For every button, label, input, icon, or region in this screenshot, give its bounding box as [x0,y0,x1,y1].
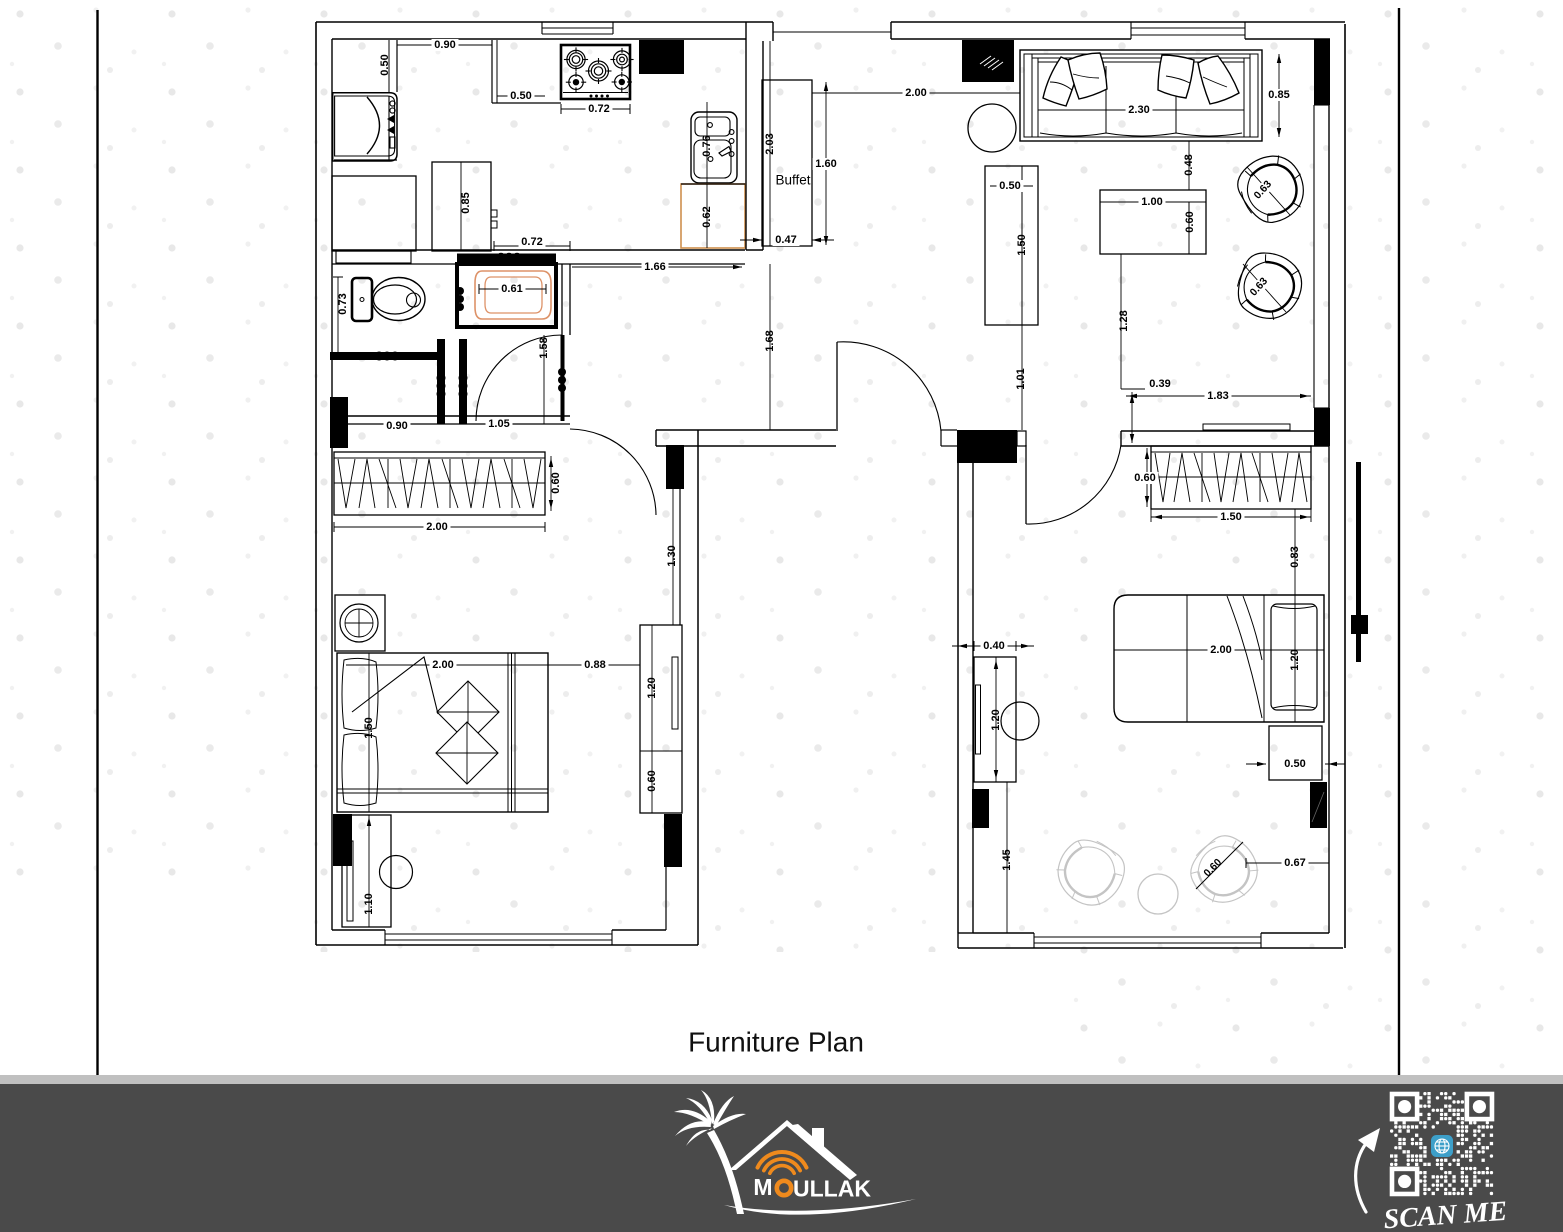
svg-text:0.72: 0.72 [588,103,609,115]
svg-text:1.83: 1.83 [1207,390,1228,402]
svg-text:0.76: 0.76 [701,135,713,156]
svg-text:ULLAK: ULLAK [793,1176,871,1202]
svg-text:1.50: 1.50 [1220,511,1241,523]
svg-text:0.72: 0.72 [521,236,542,248]
svg-text:0.90: 0.90 [386,420,407,432]
svg-text:M: M [753,1174,772,1200]
svg-text:0.60: 0.60 [646,770,658,791]
svg-text:0.61: 0.61 [501,283,522,295]
svg-text:0.60: 0.60 [550,472,562,493]
svg-text:0.50: 0.50 [999,180,1020,192]
svg-text:1.50: 1.50 [1016,234,1028,255]
svg-text:1.66: 1.66 [644,261,665,273]
svg-text:2.00: 2.00 [426,521,447,533]
svg-text:0.39: 0.39 [1149,378,1170,390]
svg-text:1.45: 1.45 [1001,849,1013,870]
svg-text:1.10: 1.10 [363,893,375,914]
svg-text:0.67: 0.67 [1284,857,1305,869]
svg-text:0.60: 0.60 [1134,472,1155,484]
svg-text:2.03: 2.03 [764,133,776,154]
svg-text:0.50: 0.50 [379,54,391,75]
svg-text:2.00: 2.00 [1210,644,1231,656]
svg-text:0.47: 0.47 [775,234,796,246]
svg-text:1.00: 1.00 [1141,196,1162,208]
svg-text:1.58: 1.58 [538,337,550,358]
svg-text:2.00: 2.00 [905,87,926,99]
svg-text:1.60: 1.60 [815,158,836,170]
svg-text:2.30: 2.30 [1128,104,1149,116]
svg-text:0.48: 0.48 [1183,154,1195,175]
svg-text:0.88: 0.88 [584,659,605,671]
svg-text:1.30: 1.30 [666,545,678,566]
svg-text:0.60: 0.60 [1184,211,1196,232]
svg-text:0.85: 0.85 [460,192,472,213]
svg-text:0.50: 0.50 [1284,758,1305,770]
svg-text:Buffet: Buffet [775,173,810,188]
svg-text:1.05: 1.05 [488,418,509,430]
svg-text:0.40: 0.40 [983,640,1004,652]
svg-text:2.00: 2.00 [432,659,453,671]
svg-text:1.01: 1.01 [1015,368,1027,389]
svg-text:0.62: 0.62 [701,206,713,227]
svg-text:1.68: 1.68 [764,330,776,351]
svg-text:0.85: 0.85 [1268,89,1289,101]
svg-text:1.28: 1.28 [1118,310,1130,331]
svg-text:1.50: 1.50 [363,717,375,738]
svg-text:Furniture Plan: Furniture Plan [688,1026,864,1057]
svg-text:0.83: 0.83 [1289,546,1301,567]
svg-text:0.90: 0.90 [434,39,455,51]
svg-text:1.20: 1.20 [990,709,1002,730]
svg-text:0.50: 0.50 [510,90,531,102]
svg-text:1.20: 1.20 [1289,649,1301,670]
svg-text:0.73: 0.73 [337,293,349,314]
svg-text:1.20: 1.20 [646,677,658,698]
